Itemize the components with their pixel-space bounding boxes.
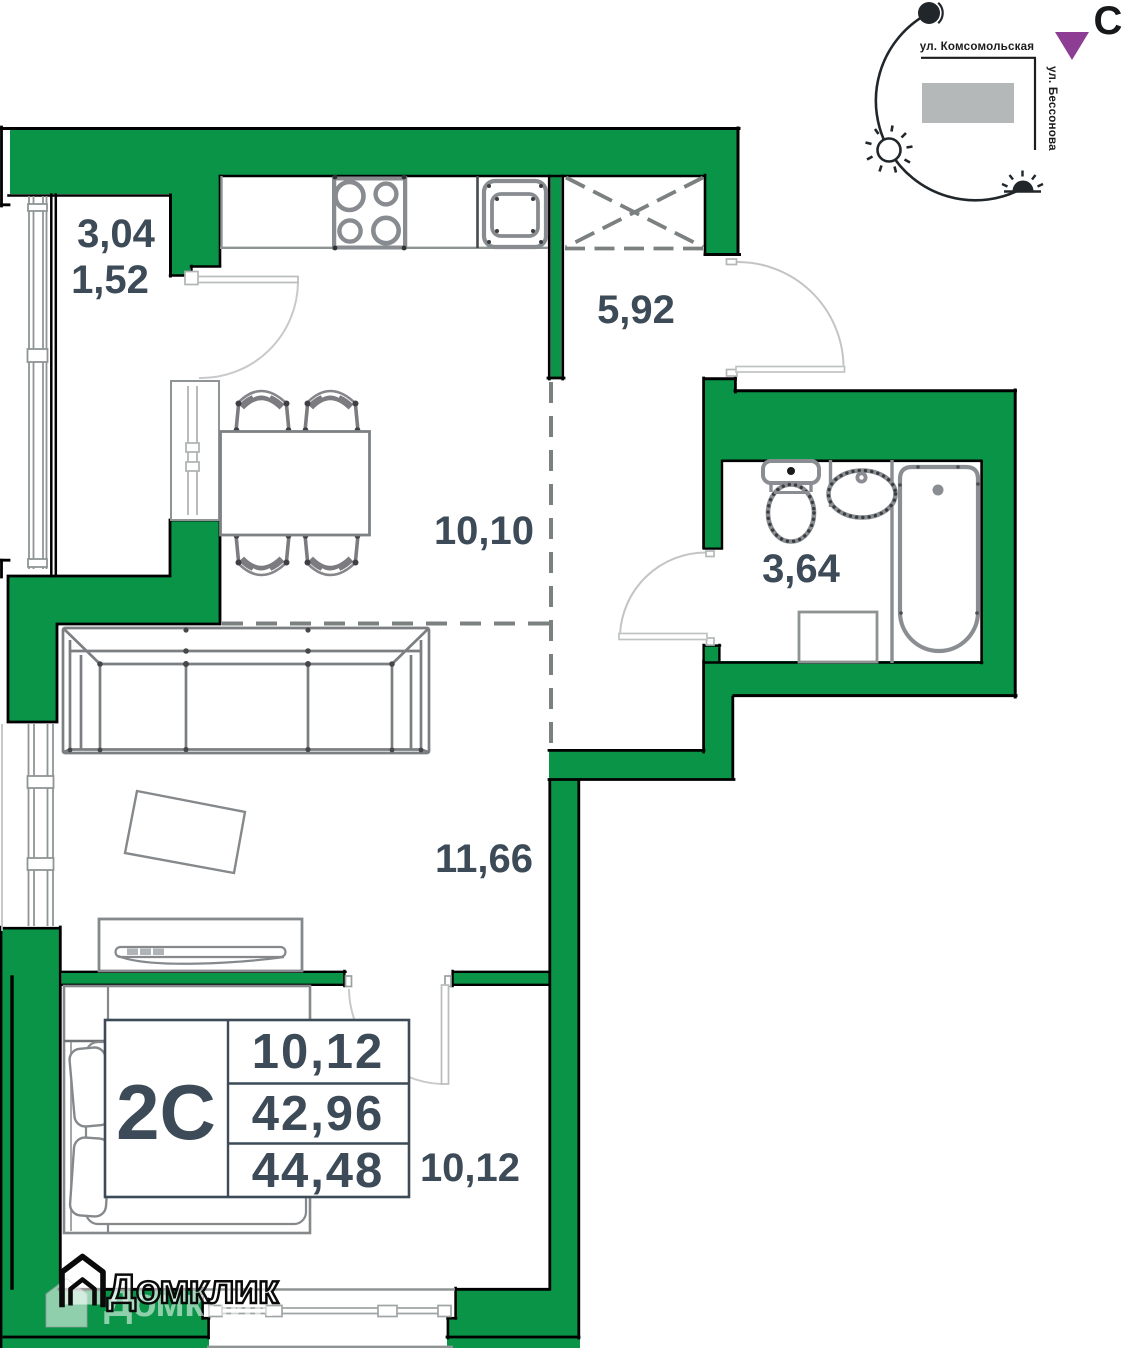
svg-text:3,64: 3,64 (762, 547, 841, 591)
svg-text:ул. Комсомольская: ул. Комсомольская (920, 40, 1034, 53)
svg-text:Домклик: Домклик (107, 1266, 279, 1312)
svg-text:10,10: 10,10 (434, 509, 534, 553)
svg-text:5,92: 5,92 (597, 288, 675, 332)
svg-text:2С: 2С (116, 1068, 216, 1156)
svg-text:ул. Бессонова: ул. Бессонова (1046, 66, 1059, 151)
svg-text:10,12: 10,12 (252, 1025, 385, 1079)
svg-text:С: С (1094, 0, 1122, 43)
svg-text:3,04: 3,04 (77, 212, 156, 256)
svg-text:10,12: 10,12 (420, 1146, 520, 1190)
svg-text:42,96: 42,96 (252, 1087, 385, 1141)
svg-text:11,66: 11,66 (435, 837, 533, 881)
svg-text:44,48: 44,48 (252, 1144, 385, 1198)
svg-text:1,52: 1,52 (71, 258, 149, 302)
